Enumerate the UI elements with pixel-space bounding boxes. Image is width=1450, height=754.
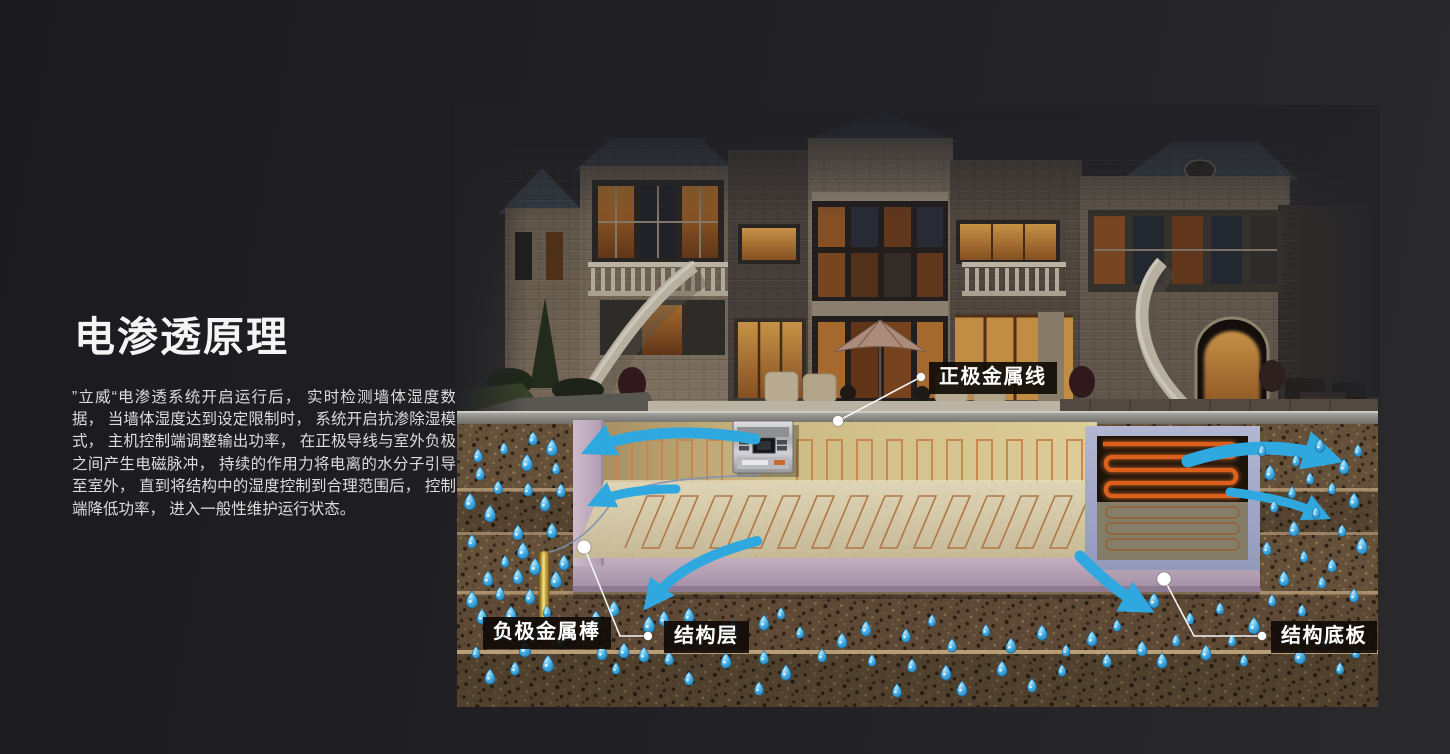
cross-section	[457, 373, 1378, 708]
basement-structure	[539, 420, 1260, 619]
page: { "intro": { "title": "电渗透原理", "body": "…	[0, 0, 1450, 754]
mansion-photo	[455, 105, 1380, 420]
label-structure-base-plate: 结构底板	[1271, 621, 1377, 653]
label-negative-metal-rod: 负极金属棒	[483, 617, 611, 649]
control-unit	[733, 421, 799, 477]
label-positive-metal-wire: 正极金属线	[929, 362, 1057, 394]
label-structure-layer: 结构层	[664, 621, 749, 653]
